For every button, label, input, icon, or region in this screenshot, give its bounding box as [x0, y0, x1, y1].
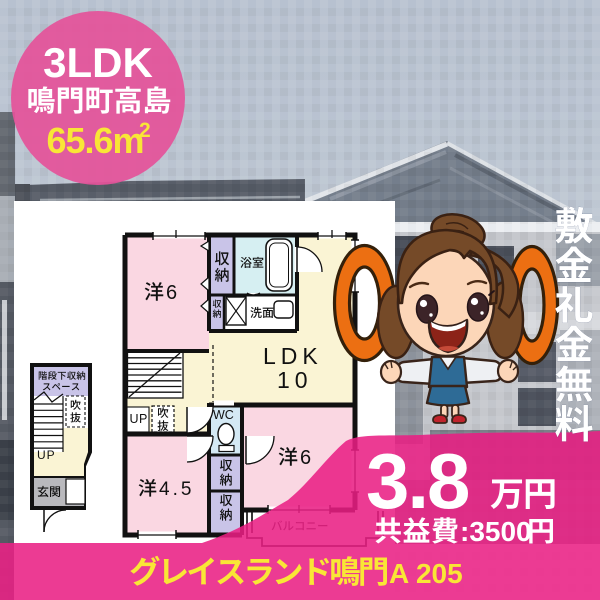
svg-text:3LDK: 3LDK — [43, 39, 153, 86]
svg-text::3500: :3500 — [460, 516, 532, 547]
svg-text:UP: UP — [37, 448, 56, 462]
svg-text:6: 6 — [166, 282, 177, 304]
svg-text:LDK: LDK — [263, 343, 323, 369]
svg-text:3.8: 3.8 — [366, 437, 468, 525]
svg-text:WC: WC — [213, 408, 234, 422]
svg-text:A 205: A 205 — [389, 558, 463, 589]
svg-text:6: 6 — [300, 447, 311, 469]
svg-text:4.5: 4.5 — [159, 479, 194, 500]
svg-text:10: 10 — [277, 367, 313, 393]
svg-text:65.6m: 65.6m — [46, 120, 143, 161]
svg-text:UP: UP — [130, 412, 148, 426]
svg-text:2: 2 — [139, 119, 151, 142]
